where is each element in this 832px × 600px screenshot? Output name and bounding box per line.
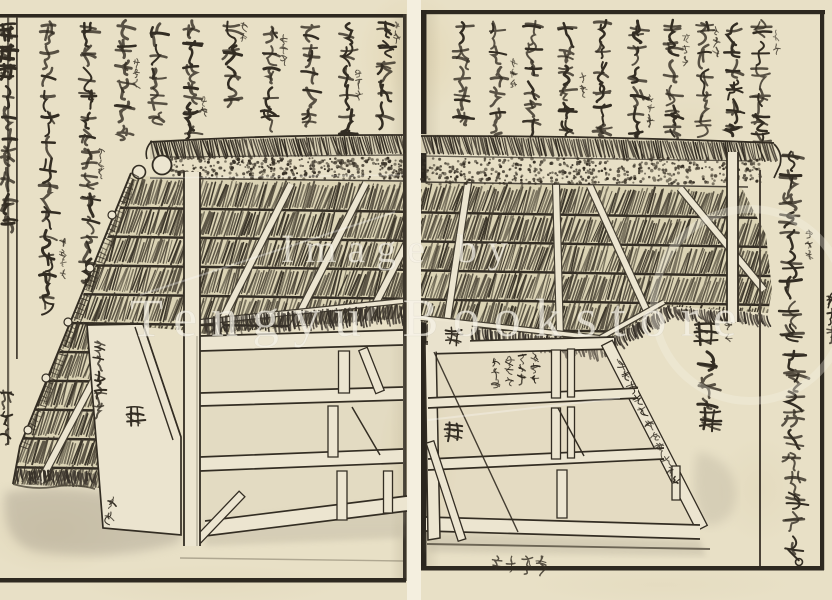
svg-text:Tengyu Bookstore: Tengyu Bookstore bbox=[130, 288, 751, 348]
svg-text:Image by: Image by bbox=[281, 226, 519, 271]
